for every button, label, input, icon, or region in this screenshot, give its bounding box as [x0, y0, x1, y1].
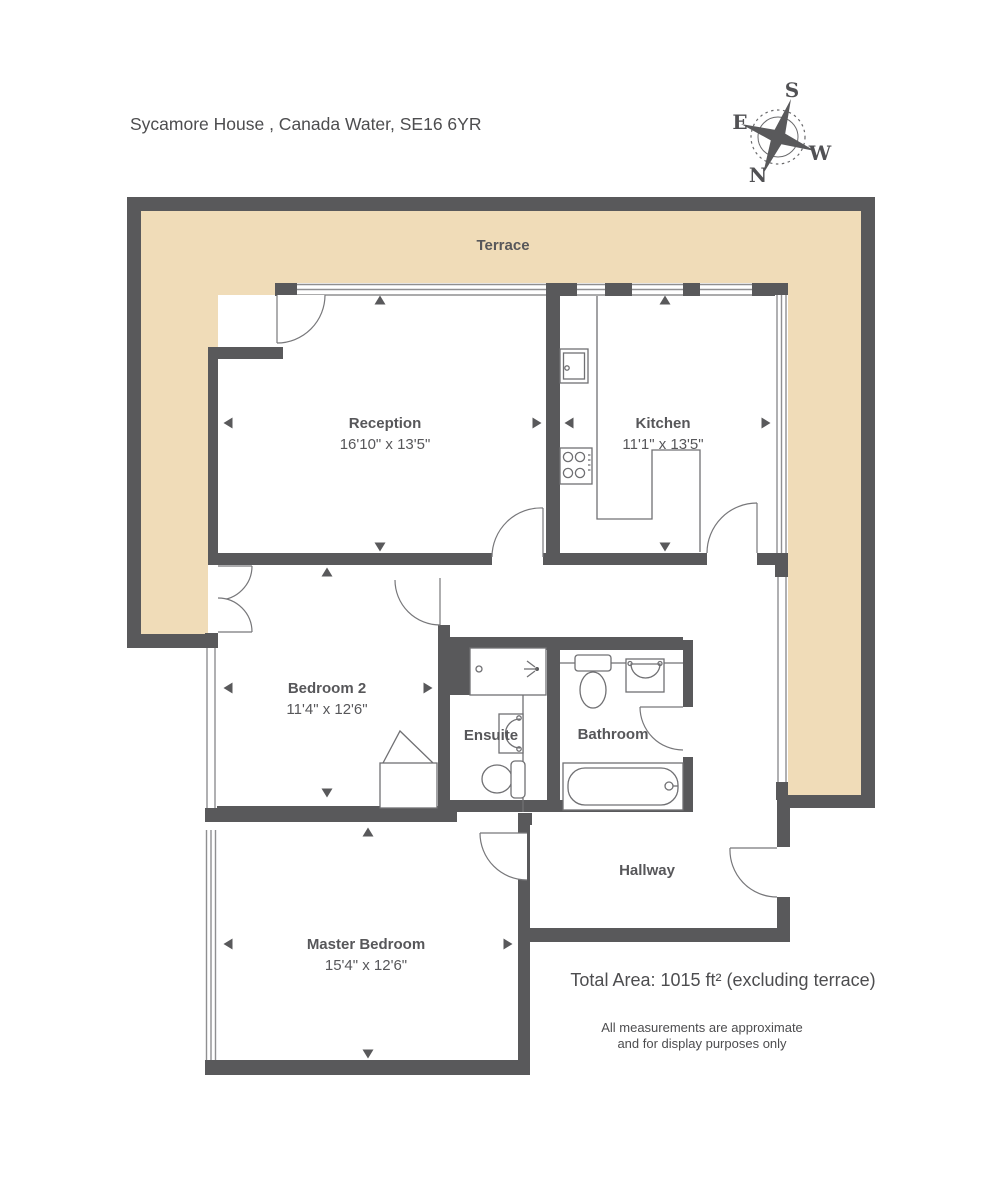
ensuite-toilet-bowl	[482, 765, 512, 793]
room-label-terrace: Terrace	[476, 237, 529, 254]
room-label-bedroom2: Bedroom 2	[288, 680, 366, 697]
compass-west: W	[808, 141, 832, 165]
compass: S E W N	[732, 78, 831, 187]
floorplan-page: S E W N Sycamore House , Canada Water, S…	[0, 0, 995, 1200]
bathroom-toilet-cistern	[575, 655, 611, 671]
room-label-ensuite: Ensuite	[464, 727, 518, 744]
plan-title: Sycamore House , Canada Water, SE16 6YR	[130, 114, 481, 134]
room-label-bathroom: Bathroom	[578, 726, 649, 743]
room-label-reception: Reception	[349, 415, 422, 432]
compass-east: E	[732, 110, 747, 134]
room-dims-master: 15'4" x 12'6"	[325, 957, 407, 974]
disclaimer-line1: All measurements are approximate	[601, 1020, 803, 1035]
room-dims-reception: 16'10" x 13'5"	[340, 436, 431, 453]
room-label-hallway: Hallway	[619, 862, 676, 879]
disclaimer-line2: and for display purposes only	[617, 1036, 787, 1051]
compass-north: N	[749, 163, 767, 187]
ensuite-toilet-cistern	[511, 761, 525, 798]
room-dims-kitchen: 11'1" x 13'5"	[622, 436, 703, 453]
kitchen-sink	[560, 349, 588, 383]
floor-plan: S E W N Sycamore House , Canada Water, S…	[0, 0, 995, 1200]
total-area-text: Total Area: 1015 ft² (excluding terrace)	[570, 970, 875, 990]
room-label-master: Master Bedroom	[307, 936, 425, 953]
room-label-kitchen: Kitchen	[635, 415, 690, 432]
bathroom-toilet-bowl	[580, 672, 606, 708]
room-dims-bedroom2: 11'4" x 12'6"	[286, 701, 367, 718]
compass-south: S	[785, 78, 799, 102]
